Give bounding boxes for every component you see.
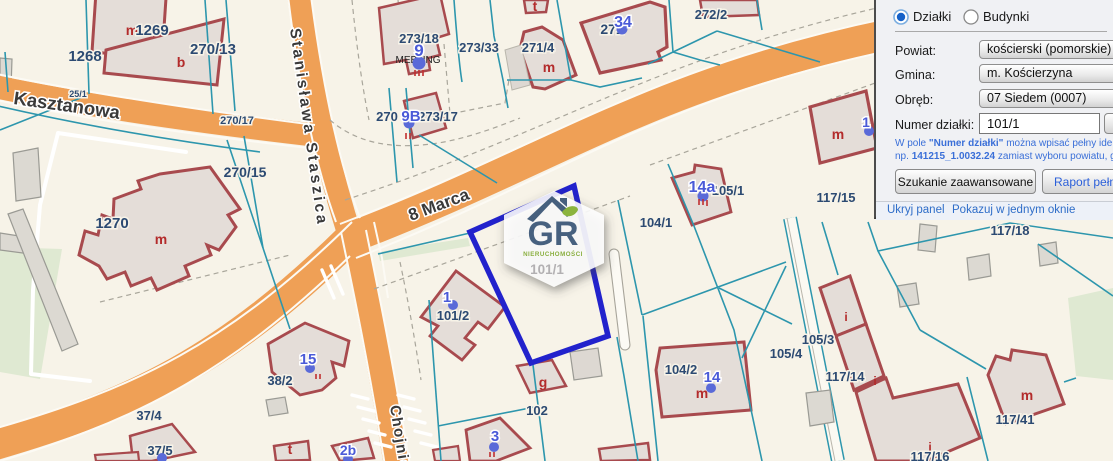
svg-text:117/41: 117/41: [995, 412, 1034, 427]
svg-text:2b: 2b: [340, 442, 356, 458]
svg-text:GR: GR: [528, 215, 579, 253]
svg-text:270/17: 270/17: [220, 115, 254, 127]
svg-text:270/13: 270/13: [190, 41, 236, 58]
svg-text:271/4: 271/4: [522, 40, 555, 55]
svg-text:m: m: [543, 59, 555, 75]
svg-text:273/33: 273/33: [459, 40, 499, 55]
svg-text:117/15: 117/15: [816, 190, 855, 205]
svg-text:1268: 1268: [68, 48, 101, 65]
svg-text:1270: 1270: [95, 215, 128, 232]
svg-text:m: m: [832, 126, 844, 142]
svg-text:273/17: 273/17: [418, 109, 458, 124]
svg-text:104/2: 104/2: [665, 362, 698, 377]
svg-text:1: 1: [443, 289, 451, 306]
svg-text:1269: 1269: [135, 22, 168, 39]
svg-text:15: 15: [300, 351, 317, 368]
svg-text:105/1: 105/1: [712, 183, 745, 198]
svg-text:9B: 9B: [401, 108, 420, 125]
svg-text:104/1: 104/1: [640, 215, 673, 230]
svg-text:101/2: 101/2: [437, 308, 470, 323]
svg-text:9: 9: [414, 41, 423, 60]
svg-text:1: 1: [862, 114, 870, 130]
svg-text:102: 102: [526, 403, 548, 418]
svg-text:34: 34: [614, 14, 632, 31]
svg-text:14: 14: [704, 369, 721, 386]
svg-text:270: 270: [376, 109, 398, 124]
svg-text:t: t: [288, 441, 293, 457]
svg-text:38/2: 38/2: [267, 373, 292, 388]
svg-text:g: g: [539, 374, 548, 390]
svg-text:117/16: 117/16: [910, 449, 949, 461]
svg-text:105/3: 105/3: [802, 332, 835, 347]
svg-text:105/4: 105/4: [770, 346, 803, 361]
svg-text:m: m: [1021, 387, 1033, 403]
svg-text:101/1: 101/1: [530, 262, 564, 277]
svg-text:b: b: [177, 54, 186, 70]
svg-text:117/14: 117/14: [825, 369, 865, 384]
svg-text:m: m: [155, 231, 167, 247]
svg-text:i: i: [844, 310, 847, 324]
svg-text:t: t: [533, 0, 538, 14]
svg-text:272/2: 272/2: [695, 7, 728, 22]
svg-text:270/15: 270/15: [224, 164, 267, 180]
svg-text:i: i: [873, 374, 876, 388]
svg-text:37/4: 37/4: [136, 408, 162, 423]
svg-text:14a: 14a: [689, 179, 716, 196]
svg-text:NIERUCHOMOŚCI: NIERUCHOMOŚCI: [523, 251, 583, 258]
svg-text:3: 3: [491, 428, 499, 445]
svg-text:117/18: 117/18: [990, 223, 1029, 238]
